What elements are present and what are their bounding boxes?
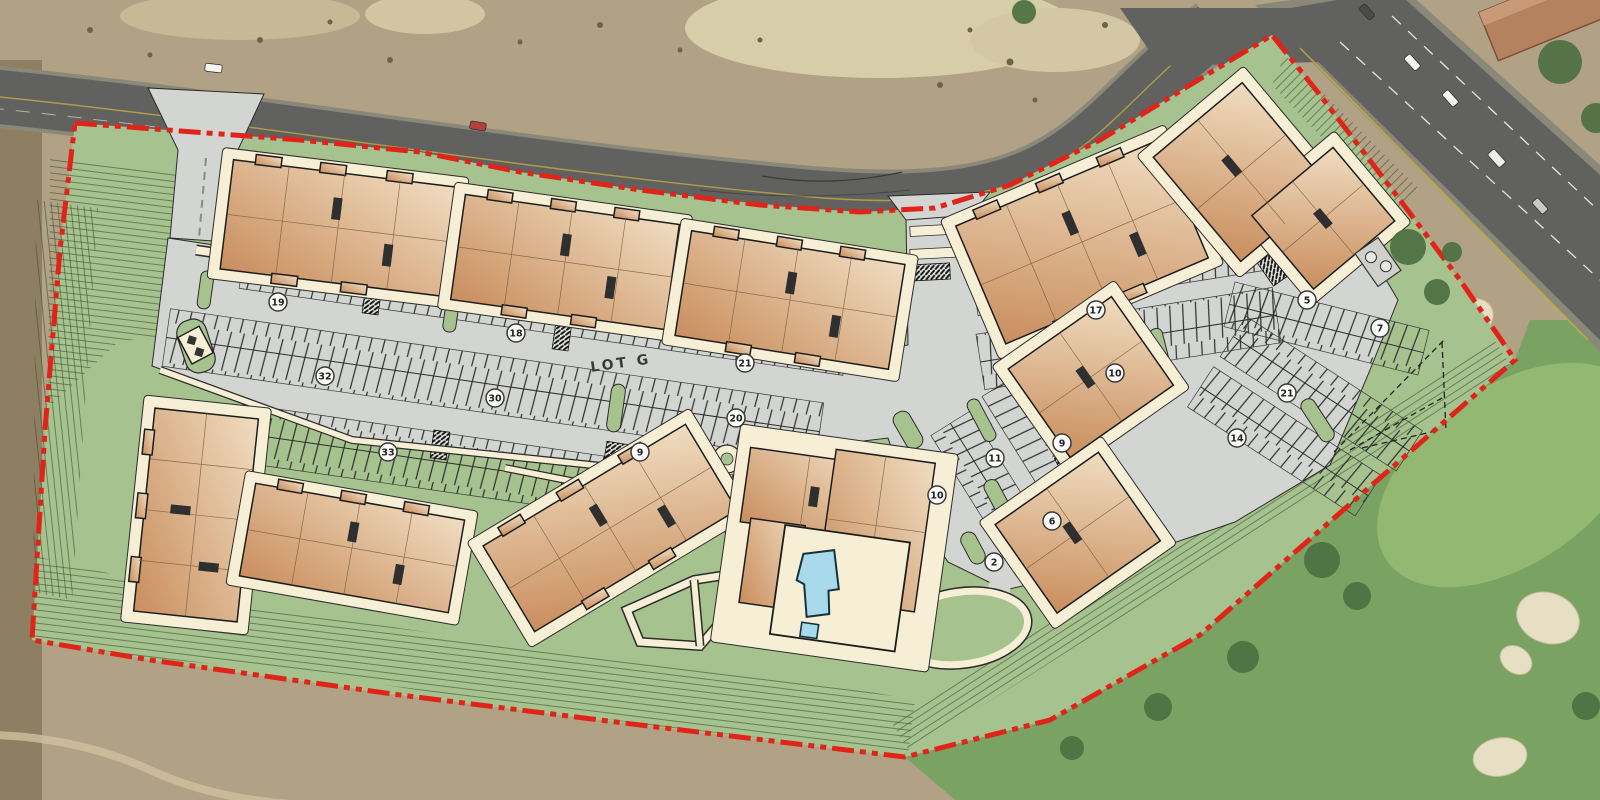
parking-count-value: 21: [1280, 388, 1293, 399]
parking-count-value: 10: [1108, 368, 1122, 379]
parking-count-value: 11: [988, 453, 1001, 464]
parking-count-value: 20: [729, 413, 743, 424]
parking-count-value: 10: [930, 490, 944, 501]
car-white: [205, 63, 223, 73]
parking-count-value: 7: [1377, 323, 1384, 334]
parking-count-value: 18: [509, 328, 523, 339]
parking-count-value: 6: [1049, 516, 1056, 527]
parking-count-value: 19: [271, 297, 284, 308]
parking-count-value: 2: [991, 557, 998, 568]
parking-count-value: 21: [738, 358, 751, 369]
pool-courtyard: [770, 525, 910, 651]
spa: [800, 622, 819, 638]
parking-count-value: 14: [1230, 433, 1244, 444]
parking-count-value: 17: [1089, 305, 1102, 316]
site-plan-canvas: LOT G 19321830332120911109621017211457: [0, 0, 1600, 800]
parking-count-value: 9: [1059, 438, 1066, 449]
parking-count-value: 32: [318, 371, 331, 382]
parking-count-value: 9: [637, 447, 644, 458]
parking-count-value: 30: [488, 393, 502, 404]
clubhouse: [710, 424, 958, 672]
parking-count-value: 5: [1304, 295, 1311, 306]
desert-light-patch: [970, 8, 1140, 72]
parking-count-value: 33: [381, 447, 394, 458]
